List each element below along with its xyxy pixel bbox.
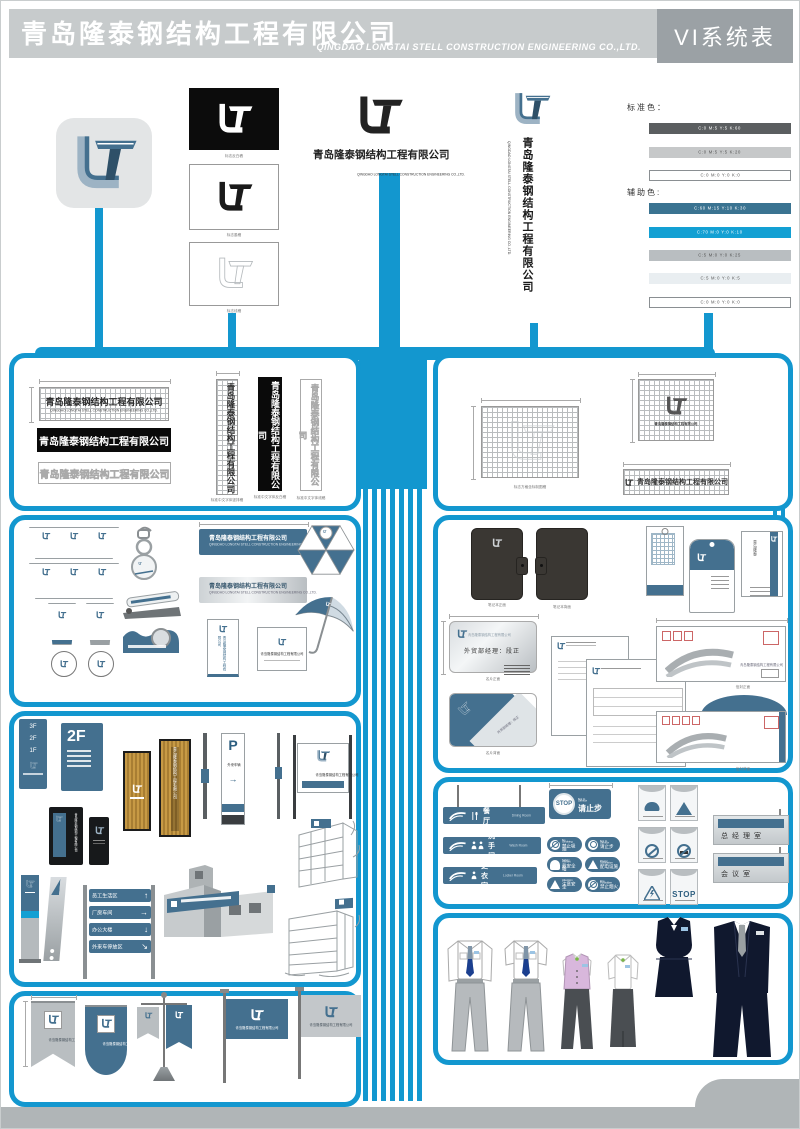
swatch-code: C:0 M:0 Y:0 K:0 [700,300,740,304]
parking-arrow: → [222,774,244,784]
floor-2f-sign: 2F [61,723,103,791]
sign-pole-band [275,767,282,779]
p​ylon-gold-large: 青岛隆泰钢结构工程有限公司 [159,739,191,837]
color-swatch: C:0 M:5 Y:5 K:20 [649,147,791,158]
logotype-caption: 标准中文字体竖排稿 [209,497,245,502]
floor-label: 3F [19,724,47,730]
direction-board-post [151,885,155,979]
direction-label: 办公大楼 [92,926,112,934]
direction-label: 员工生活区 [92,892,118,900]
oval-sign-fire: Fire Forbidden禁止烟火 [585,877,620,892]
color-swatch: C:60 M:15 Y:10 K:30 [649,203,791,214]
parking-totem: P 外来车辆 → [221,733,245,825]
lt-logo [663,393,689,419]
pylon-sign [21,875,39,963]
notebook-front [471,528,523,600]
square-sign-no-entry [638,827,666,863]
dimension-line [638,372,716,377]
document-bag-flap [689,539,735,613]
footer-band [1,1107,800,1129]
logo-caption-ink: 标志墨稿 [207,232,261,237]
post-sign-board: 青岛隆泰钢结构工程有限公司 [297,743,349,793]
envelope-company: 青岛隆泰钢结构工程有限公司 [740,662,783,667]
dimension-line [623,462,731,467]
vi-badge: VI系统表 [657,9,793,63]
envelope-back [656,711,786,763]
vi-badge-label: VI系统表 [674,20,776,52]
hanging-sign-label: 餐厅 [483,806,500,826]
lt-logo-faint [503,415,557,469]
paper-tray [23,527,125,559]
parking-p: P [222,737,244,753]
card-vertical-name: 青岛隆泰钢结构工程有限公司 [218,636,228,674]
post-sign-name: 青岛隆泰钢结构工程有限公司 [316,772,359,777]
notebook-front-caption: 笔记本正面 [479,602,515,607]
business-card-front: 青岛隆泰钢结构工程有限公司 外贸部经理：段正 [449,621,537,673]
uniform-shirt-short [501,937,551,1055]
document-folder-vertical: 青岛隆泰 [741,531,783,597]
color-swatch: C:5 M:0 Y:0 K:25 [649,250,791,261]
dimension-line [449,614,539,619]
swatch-code: C:0 M:5 Y:5 K:60 [699,126,742,130]
logotype-black-bar: 青岛隆泰钢结构工程有限公司 [37,428,171,452]
logotype-name-outline: 青岛隆泰钢结构工程有限公司 [40,466,170,481]
totem-dark-small [89,817,109,865]
card-person: 外贸部经理：段正 [464,646,520,655]
square-sign-high-voltage [638,869,666,905]
trunk-comb [363,487,422,1101]
standard-colors-label: 标准色： [627,102,667,113]
square-sign-stop: STOP [670,869,698,905]
floor-big-label: 2F [67,728,97,746]
plaque-name: 青岛隆泰钢结构工程有限公司 [209,584,405,590]
dimension-line [441,621,446,675]
card-front-caption: 名片正面 [475,676,511,681]
floor-directory-sign: 3F 2F 1F [19,719,47,789]
vi-system-poster: 青岛隆泰钢结构工程有限公司 QINGDAO LONGTAI STELL CONS… [0,0,800,1129]
stop-en: Not In Service [578,799,591,802]
dimension-line [481,398,581,403]
door-plate-label: 总经理室 [721,831,765,841]
color-swatch: C:5 M:0 Y:0 K:5 [649,273,791,284]
hanger-rod [457,785,459,807]
dimension-line [630,379,635,443]
vertical-en: QINGDAO LONGTAI STELL CONSTRUCTION ENGIN… [507,141,511,311]
logotype-black-vertical: 青岛隆泰钢结构工程有限公司 [258,377,282,491]
direction-row: 外来车停放区 ↘ [89,940,151,953]
uniform-vest-female [557,951,597,1053]
swatch-code: C:0 M:0 Y:0 K:0 [700,173,740,177]
direction-row: 员工生活区 ↑ [89,889,151,902]
direction-arrow: ↑ [144,892,148,900]
direction-row: 办公大楼 ↓ [89,923,151,936]
color-swatch: C:0 M:0 Y:0 K:0 [649,170,791,181]
logotype-caption: 标准中文字体反白稿 [252,494,288,499]
dimension-line [29,387,34,423]
main-logo-tile [56,118,152,208]
notebook-back [536,528,588,600]
square-sign-no-smoking [670,827,698,863]
color-swatch: C:0 M:0 Y:0 K:0 [649,297,791,308]
pole-flag-blue: 青岛隆泰钢结构工程有限公司 [219,993,289,1085]
logotype-grid-horizontal: 青岛隆泰钢结构工程有限公司 QINGDAO LONGTAI STELL CONS… [39,387,169,421]
logo-grid-combo-drawing: 青岛隆泰钢结构工程有限公司 [638,379,714,441]
logo-grid-drawing-large [481,406,579,478]
logo-caption-reverse: 标志反白稿 [207,153,261,158]
hanging-sign-locker: 更衣室 Locker Room [443,867,537,884]
hanging-sign-label: 更衣室 [481,861,491,891]
logotype-outline-bar: 青岛隆泰钢结构工程有限公司 [38,462,171,484]
card-company: 青岛隆泰钢结构工程有限公司 [468,632,511,637]
logotype-caption: 标准中文字体线稿 [293,495,329,500]
oval-sign-attention: Attention注意安全 [547,877,582,892]
square-sign-warning [670,785,698,821]
logo-combo-vertical: 青岛隆泰钢结构工程有限公司 QINGDAO LONGTAI STELL CONS… [497,87,567,131]
notebook-back-caption: 笔记本背面 [544,604,580,609]
color-swatch: C:70 M:0 Y:0 K:10 [649,227,791,238]
parking-sub: 外来车辆 [222,754,244,772]
office-building-line-drawing [279,897,363,977]
dimension-line [23,1001,28,1067]
totem-dark-large: 青岛隆泰钢结构工程有限公司 [49,807,83,865]
logotype-en: QINGDAO LONGTAI STELL CONSTRUCTION ENGIN… [50,409,158,412]
oval-sign-substation: Power Substation配电设施 [585,857,620,872]
stop-sign-large: STOP Not In Service 请止步 [549,789,611,819]
stop-cn: 请止步 [578,807,607,811]
stapler [121,585,185,621]
uniform-blouse-skirt [603,951,643,1053]
hanging-sign-label: 洗手间 [488,831,498,861]
stop-word: STOP [556,801,572,807]
logo-grid-horizontal-drawing: 青岛隆泰钢结构工程有限公司 [623,469,729,495]
hanging-flag-blue: 青岛隆泰钢结构工程有限公司 [85,1005,127,1075]
dimension-line [199,522,309,527]
connector-main-logo [95,208,103,354]
flag-name: 青岛隆泰钢结构工程有限公司 [236,1025,279,1030]
dimension-line [31,995,77,1000]
lt-logo-white [213,98,255,140]
oval-sign-not-in-service: Not In Service请止步 [585,837,620,852]
logotype-name: 青岛隆泰钢结构工程有限公司 [39,433,169,448]
direction-board-post [83,885,87,979]
post-sign-post [293,735,296,819]
building-line-drawing [291,817,361,889]
hanging-sign-canteen: 餐厅 Dining Room [443,807,545,824]
lt-logo [67,126,141,200]
uniform-suit-male [705,917,779,1061]
flag-name: 青岛隆泰钢结构工程有限公司 [310,1022,353,1027]
direction-arrow: ↘ [141,943,148,951]
post-sign-post [349,735,352,819]
combo-grid-name: 青岛隆泰钢结构工程有限公司 [655,421,698,426]
door-plate-meeting: 会议室 [713,853,789,883]
logo-reverse-box [189,88,279,150]
dimension-line [216,371,240,376]
table-flag-stand [135,995,193,1087]
swatch-code: C:5 M:0 Y:0 K:5 [700,276,740,280]
logotype-outline-vertical: 青岛隆泰钢结构工程有限公司 [300,379,322,491]
combo-grid-name: 青岛隆泰钢结构工程有限公司 [637,477,728,487]
lt-logo [352,89,406,143]
plaque-blue: 青岛隆泰钢结构工程有限公司 QINGDAO LONGTAI STELL CONS… [199,529,307,555]
logo-combo-standard: 青岛隆泰钢结构工程有限公司 QINGDAO LONGTAI STELL CONS… [313,89,445,181]
oval-sign-helmet: Safety Helmet戴安全帽 [547,857,582,872]
auxiliary-colors-label: 辅助色: [627,187,661,198]
vertical-name: 青岛隆泰钢结构工程有限公司 [519,137,535,313]
card-back-caption: 名片背面 [475,750,511,755]
sign-pole-band [201,769,209,783]
business-card-back: 外贸部经理：段正 [449,693,537,747]
door-plate-label: 会议室 [721,869,754,879]
swatch-code: C:0 M:5 Y:5 K:20 [699,150,742,154]
trunk [359,353,427,489]
logo-ink-box [189,164,279,230]
logo-outline-box [189,242,279,306]
paper-tray [23,563,125,599]
lt-logo [624,476,634,489]
direction-row: 厂房车间 → [89,906,151,919]
umbrella-side-view [289,595,359,659]
grid-caption: 标志方格坐标制图稿 [500,484,560,489]
square-stop-word: STOP [672,890,696,899]
color-swatch: C:0 M:5 Y:5 K:60 [649,123,791,134]
dimension-line [549,783,613,788]
lt-logo-outline [213,253,255,295]
swatch-code: C:5 M:0 Y:0 K:25 [699,253,742,257]
envelope-front: 青岛隆泰钢结构工程有限公司 [656,626,786,682]
pole-flag-gray: 青岛隆泰钢结构工程有限公司 [295,991,367,1083]
pylon-gold-small [123,751,151,831]
direction-arrow: → [140,909,148,917]
dimension-line [39,379,171,384]
combo-en: QINGDAO LONGTAI STELL CONSTRUCTION ENGIN… [313,163,445,181]
dimension-line [656,618,788,623]
connector-colors [704,313,713,349]
hanging-sign-washroom: 洗手间 Wash Room [443,837,541,854]
lt-logo-black [213,176,255,218]
coaster [51,651,77,677]
envelope-back-caption: 信封背面 [725,766,761,771]
direction-arrow: ↓ [144,926,148,934]
tape-dispenser [121,621,181,657]
pylon-text: 青岛隆泰钢结构工程有限公司 [171,747,179,831]
umbrella-top-view [295,521,357,579]
square-sign-helmet [638,785,666,821]
factory-building-mockup [159,857,281,939]
direction-label: 厂房车间 [92,909,112,917]
floor-label: 1F [19,748,47,754]
logotype-grid-vertical: 青岛隆泰钢结构工程有限公司 [216,379,238,495]
dimension-line [471,406,476,480]
lt-logo [509,87,553,131]
keychain [127,525,161,583]
envelope-front-caption: 信封正面 [725,684,761,689]
hanger-rod [519,785,521,807]
totem-text: 青岛隆泰钢结构工程有限公司 [74,813,78,859]
document-bag-grid [646,526,684,596]
combo-name: 青岛隆泰钢结构工程有限公司 [313,147,445,162]
floor-label: 2F [19,736,47,742]
direction-label: 外来车停放区 [92,943,123,951]
door-plate-gm: 总经理室 [713,815,789,845]
oval-sign-no-smoking: No Smoking禁止吸烟 [547,837,582,852]
uniform-shirt-long [445,937,495,1055]
logotype-name: 青岛隆泰钢结构工程有限公司 [45,395,162,408]
swatch-code: C:70 M:0 Y:0 K:10 [697,230,743,234]
page-subtitle: QINGDAO LONGTAI STELL CONSTRUCTION ENGIN… [241,42,641,52]
card-vertical: 青岛隆泰钢结构工程有限公司 [207,619,239,677]
coaster [88,651,114,677]
envelope-swoosh [665,643,735,677]
connector-combo [379,173,400,355]
swatch-code: C:60 M:15 Y:10 K:30 [694,206,746,210]
logo-caption-outline: 标志线稿 [207,308,261,313]
uniform-suit-female [647,915,701,1011]
